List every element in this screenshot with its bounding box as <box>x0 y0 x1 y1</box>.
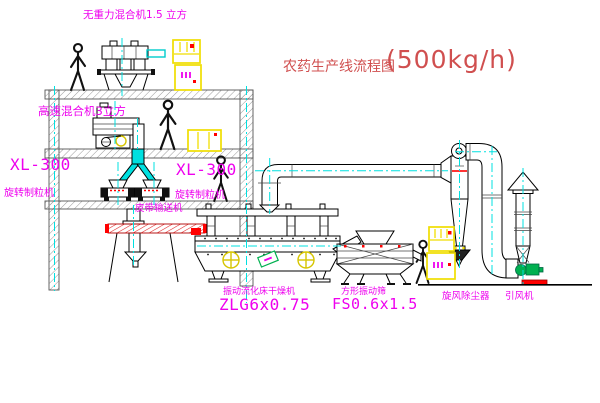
rotary-granulator-right <box>135 180 169 201</box>
spring-mounts <box>207 216 328 236</box>
label-granulator-left-model: XL-300 <box>10 157 71 174</box>
label-high-speed-mixer: 高速混合机3立方 <box>38 105 126 117</box>
diagram-title-capacity: (500kg/h) <box>386 45 517 74</box>
conveyor-discharge <box>191 228 201 235</box>
vibration-motor-left <box>223 252 239 268</box>
fluid-bed-dryer <box>195 204 340 282</box>
indicator-dot <box>190 44 194 48</box>
induced-draft-fan <box>516 264 548 285</box>
control-cabinet-roof <box>173 40 201 90</box>
label-sieve-model: FS0.6x1.5 <box>332 297 418 313</box>
label-granulator-right-name: 旋转制粒机 <box>175 191 225 202</box>
cyclone-to-fan-pipe <box>466 144 511 279</box>
square-vibrating-sieve <box>333 231 421 285</box>
mixer-shaft-coupling <box>147 50 165 57</box>
control-cabinet-floor2 <box>188 130 221 151</box>
worker-roof <box>71 44 85 90</box>
label-granulator-left-name: 旋转制粒机 <box>4 189 54 200</box>
label-zero-gravity-mixer: 无重力混合机1.5 立方 <box>83 10 187 21</box>
zero-gravity-mixer <box>97 41 165 90</box>
exhaust-duct <box>258 165 441 213</box>
sieve-discharge-spout <box>413 250 421 261</box>
label-belt-conveyor: 皮带输送机 <box>135 204 183 214</box>
control-cabinet-cyclone <box>427 227 455 279</box>
label-dryer-model: ZLG6x0.75 <box>219 297 310 314</box>
discharge-chute <box>109 209 178 282</box>
vibration-motor-right <box>298 252 314 268</box>
fan-base <box>522 280 547 285</box>
belt-conveyor <box>105 224 207 235</box>
label-fan: 引风机 <box>505 292 534 302</box>
worker-floor2 <box>161 101 176 149</box>
process-flow-diagram: 无重力混合机1.5 立方 农药生产线流程图 (500kg/h) 高速混合机3立方… <box>0 0 600 403</box>
label-granulator-right-model: XL-300 <box>176 162 237 179</box>
label-cyclone: 旋风除尘器 <box>442 292 490 302</box>
diagram-title: 农药生产线流程图 <box>283 56 395 76</box>
